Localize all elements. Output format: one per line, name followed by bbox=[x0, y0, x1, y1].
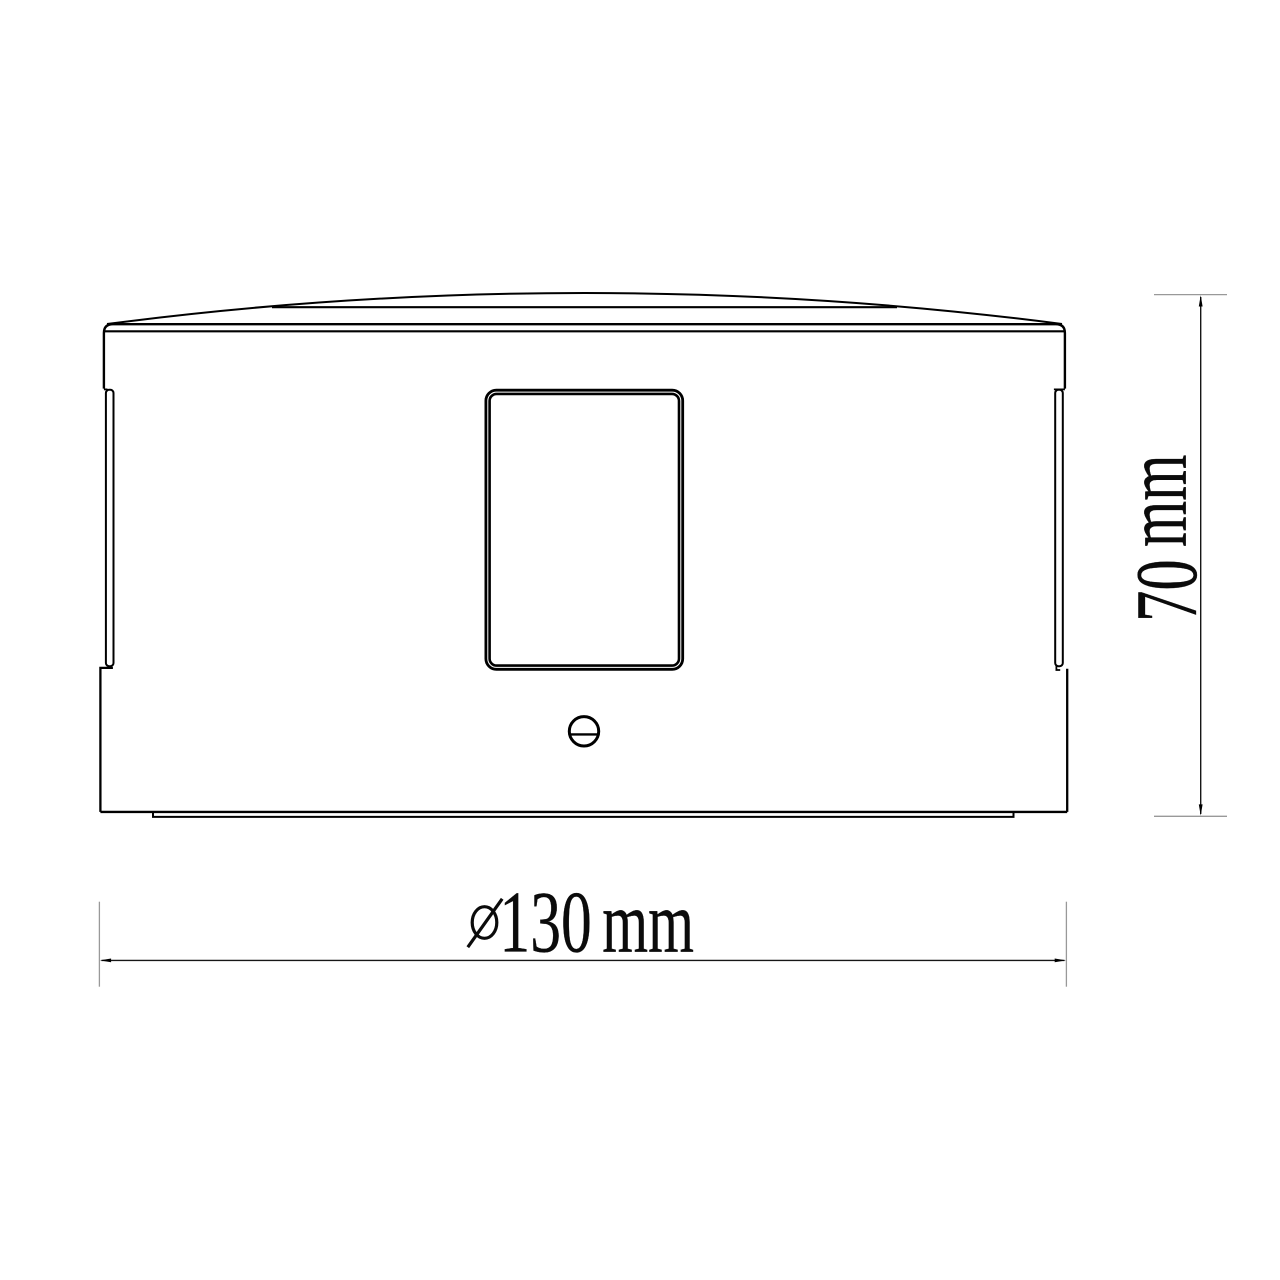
svg-text:70: 70 bbox=[1118, 559, 1216, 622]
svg-text:130: 130 bbox=[499, 874, 591, 971]
svg-text:mm: mm bbox=[602, 874, 694, 972]
svg-text:mm: mm bbox=[1108, 455, 1205, 547]
